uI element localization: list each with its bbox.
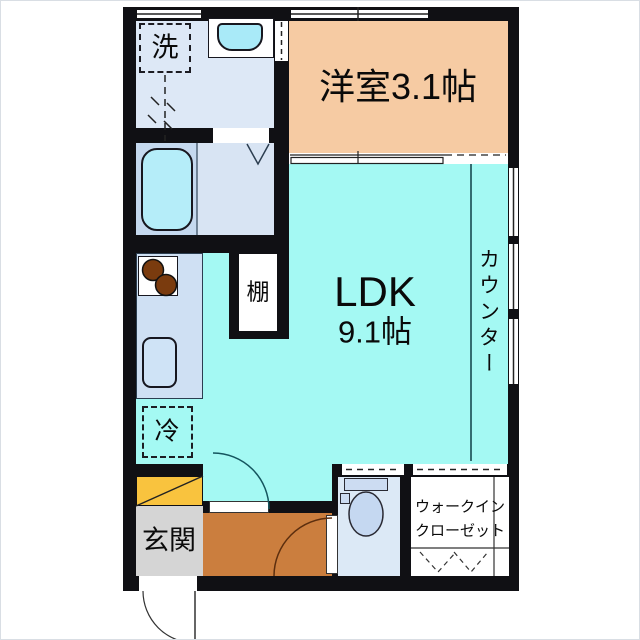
- counter-label: カウンター: [478, 248, 499, 378]
- ldk-size-label: 9.1帖: [338, 317, 412, 348]
- window-right-2: [509, 244, 518, 309]
- bathroom-floor: [197, 143, 274, 235]
- vanity-sink-icon: [217, 23, 263, 51]
- bathroom-door-opening: [213, 128, 269, 143]
- washing-machine-label: 洗: [152, 35, 179, 62]
- ldk-label: LDK: [334, 271, 416, 313]
- entry-door-arc: [143, 591, 195, 640]
- window-top-western-room: [291, 10, 428, 18]
- closet-upper-shelf-band: [413, 464, 507, 475]
- toilet-handle-icon: [340, 493, 350, 504]
- ldk-door-leaf: [209, 501, 269, 513]
- floorplan-canvas: 洋室3.1帖 LDK 9.1帖 カウンター 棚 洗 冷 玄関 ウォークイン クロ…: [0, 0, 640, 640]
- refrigerator-label: 冷: [154, 420, 179, 445]
- stove-icon: [138, 256, 178, 296]
- toilet-tank-icon: [344, 478, 388, 491]
- closet-label-line2: クローゼット: [415, 524, 505, 539]
- hall-floor: [203, 513, 332, 576]
- shoe-cabinet: [136, 476, 203, 506]
- shelf-label: 棚: [247, 281, 270, 304]
- closet-label-line1: ウォークイン: [415, 500, 505, 515]
- ldk-floor-lower: [203, 464, 332, 501]
- bathtub-icon: [141, 148, 193, 231]
- window-right-3: [509, 319, 518, 384]
- western-room-label: 洋室3.1帖: [319, 69, 477, 105]
- window-right-1: [509, 168, 518, 236]
- toilet-door-leaf: [326, 515, 338, 574]
- entrance-label: 玄関: [142, 528, 196, 555]
- pipe-space: [275, 21, 288, 61]
- kitchen-sink-icon: [142, 337, 177, 388]
- window-top-washroom: [137, 10, 201, 18]
- toilet-upper-shelf-band: [342, 464, 404, 475]
- toilet-floor: [338, 477, 400, 576]
- entry-door-opening: [139, 576, 197, 591]
- sliding-door-strip: [289, 153, 508, 164]
